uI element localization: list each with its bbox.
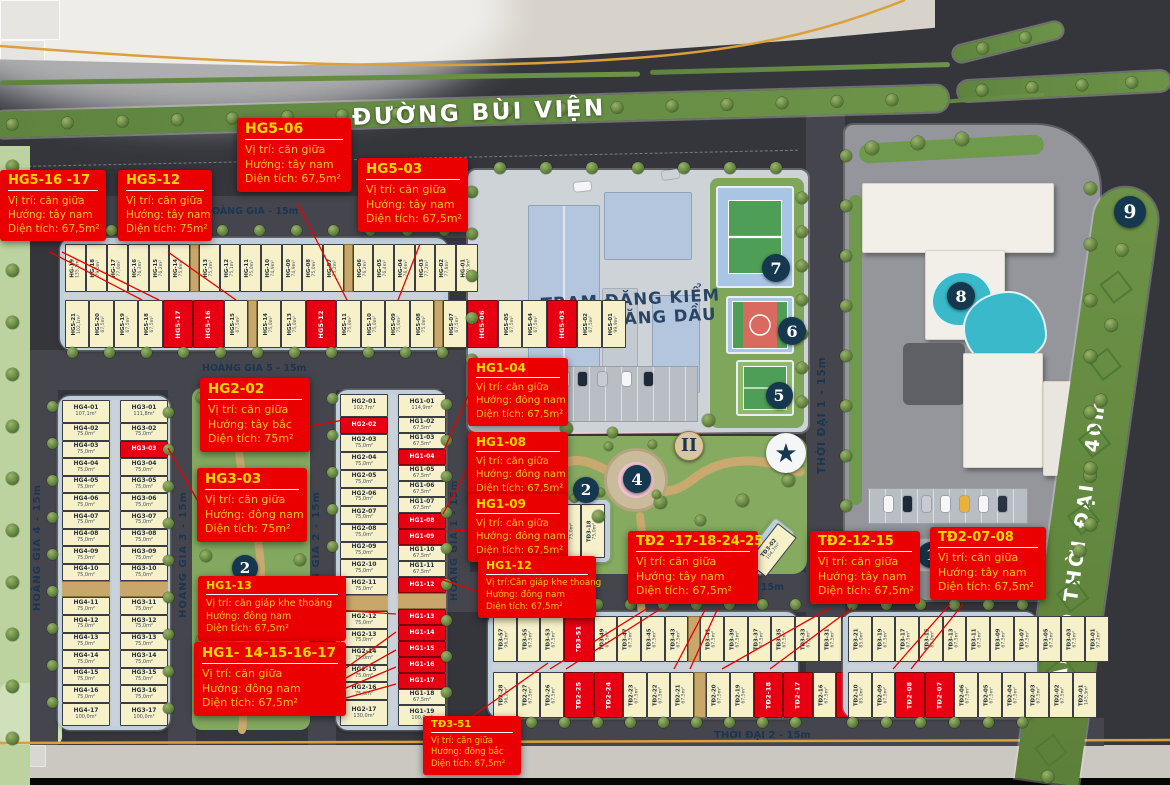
lot-area: 100,0m² [75,715,96,721]
lot-HG5-20: HG5-2067,5m² [89,300,113,348]
lot-HG2-07: HG2-0775,0m² [340,506,388,524]
tree-icon [796,362,808,374]
alley-road [688,616,700,662]
lot-HG5-09: HG5-0975,0m² [385,300,409,348]
lot-area: 75,0m² [355,551,373,557]
tree-icon [6,732,19,745]
tree-icon [625,717,636,728]
lot-HG3-06: HG3-0675,0m² [120,493,168,511]
tree-icon [559,717,570,728]
lot-area: 102,7m² [353,406,374,412]
tree-icon [47,697,58,708]
callout-title: TĐ2-07-08 [938,530,1038,548]
lot-area: 75,0m² [135,677,153,683]
lot-area: 85,0m² [860,631,865,648]
car-icon [903,496,912,512]
tree-icon [975,41,990,56]
lot-area: 76,2m² [363,260,368,277]
tree-icon [847,717,858,728]
tree-icon [141,347,152,358]
lot-HG2-01: HG2-01102,7m² [340,394,388,417]
callout-title: HG3-03 [205,471,299,490]
callout-title: HG5-06 [245,121,343,140]
lot-HG5-14: HG5-1475,0m² [257,300,281,348]
lot-area: 75,0m² [355,674,373,680]
lot-area: 75,0m² [135,624,153,630]
callout-line: Vị trí: căn giữa [366,183,460,198]
lot-TĐ2-04: TĐ2-0467,5m² [1002,672,1026,718]
lot-HG-08: HG-0875,0m² [302,244,323,292]
lot-area: 77,8m² [446,260,451,277]
lot-area: 100,0m² [133,715,154,721]
lot-TĐ2-19: TĐ2-1967,5m² [730,672,754,718]
callout-line: Vị trí: căn giáp khe thoáng [206,598,338,611]
lot-area: 67,5m² [127,316,132,333]
lot-HG5-10: HG5-1075,0m² [361,300,385,348]
lot-area: 67,5m² [1050,631,1055,648]
lot-area: 75,0m² [77,538,95,544]
lot-area: 75,0m² [77,573,95,579]
lot-HG-02: HG-0277,8m² [435,244,456,292]
callout-line: Hướng: đông nam [476,394,560,407]
road-label-hoang-gia-4: HOÀNG GIA 4 - 15m [32,455,43,640]
lawn-top [859,134,1045,164]
callout-title: HG1-13 [206,579,338,595]
tree-icon [217,225,228,236]
lot-area: 67,5m² [236,316,241,333]
alley-road [340,595,388,611]
lot-HG4-02: HG4-0275,0m² [62,423,110,441]
lot-area: 75,0m² [355,497,373,503]
lot-area: 75,0m² [77,660,95,666]
lot-HG3-09: HG3-0975,0m² [120,546,168,564]
tree-icon [47,401,58,412]
lot-HG1-06: HG1-0667,5m² [398,481,446,497]
lot-area: 75,0m² [135,695,153,701]
tree-icon [1084,294,1097,307]
lot-name: HG1-09 [410,534,435,541]
lot-HG-10: HG-1074,9m² [261,244,282,292]
lot-area: 75,0m² [135,520,153,526]
lot-HG1-07: HG1-0767,5m² [398,497,446,513]
lot-HG-12: HG-1275,1m² [220,244,241,292]
tree-icon [881,717,892,728]
tree-icon [724,717,735,728]
lot-HG4-17: HG4-17100,0m² [62,703,110,726]
lot-area: 67,5m² [1026,631,1031,648]
lot-HG4-11: HG4-1175,0m² [62,597,110,615]
lot-name: HG5-12 [318,310,325,338]
tree-icon [865,141,879,155]
lot-area: 67,5m² [831,631,836,648]
alley-road [398,593,446,609]
alley-road [344,244,353,292]
car-icon [574,181,592,192]
tree-icon [178,347,189,358]
amenity-marker-4: 4 [623,465,651,493]
lot-TĐ2-06: TĐ2-0667,5m² [954,672,978,718]
tree-icon [1017,717,1028,728]
lot-HG1-11: HG1-1167,5m² [398,561,446,577]
road-label-thoi-dai-1: THỜI ĐẠI 1 - 15m [816,348,828,483]
lot-TĐ2-09: TĐ2-0967,5m² [872,672,896,718]
hedge-icon [1099,270,1133,304]
lot-area: 75,0m² [135,468,153,474]
lot-HG5-06: HG5-06 [467,300,497,348]
block-hoang-gia-north: HG-19135,1m²HG-1879,0m²HG-1777,0m²HG-167… [60,238,448,350]
lot-HG3-01: HG3-01111,8m² [120,400,168,423]
callout-line: Vị trí: căn giữa [431,736,513,747]
lot-HG5-21: HG5-21102,1m² [65,300,89,348]
lot-HG-16: HG-1676,3m² [128,244,149,292]
lot-area: 97,2m² [1097,631,1102,648]
lot-HG1-14: HG1-14 [398,625,446,641]
lot-area: 67,5m² [1014,687,1019,704]
car-icon [578,372,587,386]
lot-HG4-10: HG4-1075,0m² [62,564,110,582]
lot-HG1-01: HG1-01114,9m² [398,394,446,417]
lot-area: 67,5m² [102,316,107,333]
lot-TĐ2-10: TĐ2-1085,0m² [848,672,872,718]
car-icon [884,496,893,512]
lot-area: 75,0m² [355,621,373,627]
lot-HG1-13: HG1-13 [398,609,446,625]
callout-line: Vị trí: căn giữa [202,667,338,682]
lot-row-bm_td3: TĐ3-5796,2m²TĐ3-5567,5m²TĐ3-5367,5m²TĐ3-… [493,616,793,662]
lot-area: 67,5m² [456,316,461,333]
tree-icon [886,94,898,106]
tree-icon [1026,81,1039,94]
lot-area: 67,5m² [553,631,558,648]
lot-area: 75,0m² [135,556,153,562]
lot-HG1-10: HG1-1067,5m² [398,545,446,561]
callout-hg1_09: HG1-09Vị trí: căn giữaHướng: đông namDiệ… [468,494,568,562]
amenity-marker-7: 7 [762,254,790,282]
back-alley [390,394,396,726]
tree-icon [796,226,808,238]
lot-HG3-04: HG3-0475,0m² [120,458,168,476]
lot-area: 77,2m² [426,260,431,277]
car-icon [941,496,950,512]
tree-icon [757,717,768,728]
tree-icon [6,420,19,433]
lot-TĐ2-05: TĐ2-0567,5m² [978,672,1002,718]
lot-TĐ2-07: TĐ2-07 [925,672,955,718]
callout-title: TĐ3-51 [431,719,513,733]
lot-TĐ2-21: TĐ2-2167,5m² [670,672,694,718]
tree-icon [163,407,174,418]
lot-area: 67,5m² [760,631,765,648]
lot-HG1-05: HG1-0567,5m² [398,465,446,481]
lot-row-bm_td2: TĐ2-2896,2m²TĐ2-2767,5m²TĐ2-2667,5m²TĐ2-… [493,672,793,718]
tree-icon [782,474,795,487]
tree-icon [757,599,768,610]
lot-HG-11: HG-1175,0m² [240,244,261,292]
lot-HG-19: HG-19135,1m² [65,244,86,292]
callout-line: Diện tích: 75m² [208,432,302,447]
tree-icon [1084,350,1097,363]
lot-TĐ3-57: TĐ3-5796,2m² [493,616,517,662]
lot-HG-05: HG-0576,4m² [373,244,394,292]
lot-HG2-14: HG2-1475,0m² [340,647,388,665]
callout-line: Diện tích: 67,5m² [206,623,338,636]
lot-area: 75,0m² [270,316,275,333]
lot-HG5-18: HG5-1867,5m² [138,300,162,348]
existing-area-bottom [0,745,1170,778]
lot-HG5-11: HG5-1175,0m² [336,300,360,348]
tree-icon [163,555,174,566]
callout-hg1_13: HG1-13Vị trí: căn giáp khe thoángHướng: … [198,576,346,641]
lot-HG4-12: HG4-1275,0m² [62,615,110,633]
alley-road [694,672,706,718]
lot-TĐ2-03: TĐ2-0367,5m² [1025,672,1049,718]
tree-icon [327,467,338,478]
callout-hg1_12: HG1-12Vị trí:Căn giáp khe thoángHướng: đ… [478,556,596,618]
lot-area: 76,3m² [139,260,144,277]
tree-icon [666,100,678,112]
lot-HG3-17: HG3-17100,0m² [120,703,168,726]
lot-row-hg5_south: HG5-21102,1m²HG5-2067,5m²HG5-1967,5m²HG5… [65,300,443,348]
tree-icon [163,518,174,529]
tree-icon [47,549,58,560]
lot-area: 107,1m² [75,412,96,418]
tree-icon [47,512,58,523]
lot-TĐ2-16: TĐ2-1667,5m² [813,672,837,718]
tree-icon [47,660,58,671]
callout-line: Diện tích: 67,5m² [202,696,338,711]
lot-area: 75,0m² [77,503,95,509]
lot-TĐ2-23: TĐ2-2367,5m² [623,672,647,718]
lot-TĐ2-22: TĐ2-2267,5m² [647,672,671,718]
lot-name: HG1-14 [410,630,435,637]
lot-column-hg1: HG1-01114,9m²HG1-0267,5m²HG1-0367,5m²HG1… [398,394,446,726]
tree-icon [1084,462,1097,475]
lot-TĐ2-27: TĐ2-2767,5m² [517,672,541,718]
tree-icon [61,117,73,129]
lot-TĐ3-19: TĐ3-1967,5m² [872,616,896,662]
lot-name: HG5-06 [479,310,486,338]
callout-line: Vị trí: căn giữa [938,551,1038,566]
lot-HG4-16: HG4-1675,0m² [62,685,110,703]
lot-HG2-06: HG2-0675,0m² [340,488,388,506]
callout-line: Hướng: đông bắc [431,747,513,758]
lot-name: TĐ2-08 [907,681,914,709]
amenity-marker-2: 2 [573,477,599,503]
lot-area: 75,0m² [77,485,95,491]
callout-hg5_06: HG5-06Vị trí: căn giữaHướng: tây namDiện… [237,118,351,192]
lot-HG4-08: HG4-0875,0m² [62,529,110,547]
lot-area: 75,0m² [135,573,153,579]
lot-area: 75,0m² [373,316,378,333]
tree-icon [1084,406,1097,419]
car-icon [598,372,607,386]
lot-name: HG3-03 [132,446,157,453]
lot-HG1-12: HG1-12 [398,577,446,593]
tree-icon [1104,318,1119,333]
lot-area: 67,5m² [413,474,431,480]
tree-icon [976,84,989,97]
lot-HG2-10: HG2-1075,0m² [340,559,388,577]
tree-icon [363,347,374,358]
tree-icon [466,270,478,282]
lot-HG2-08: HG2-0875,0m² [340,524,388,542]
lot-TĐ2-02: TĐ2-0267,5m² [1049,672,1073,718]
tree-icon [592,717,603,728]
callout-line: Hướng: đông nam [202,682,338,697]
tree-icon [441,615,452,626]
callout-title: HG1-12 [486,559,588,575]
callout-title: HG1- 14-15-16-17 [202,645,338,664]
lot-TĐ3-31: TĐ3-3167,5m² [819,616,843,662]
callout-line: Vị trí: căn giữa [8,194,98,208]
tree-icon [1018,30,1033,45]
lot-name: HG1-15 [410,646,435,653]
lot-area: 96,2m² [505,687,510,704]
callout-title: HG2-02 [208,381,302,400]
lot-HG5-17: HG5-17 [163,300,193,348]
lot-HG-03: HG-0377,2m² [415,244,436,292]
lot-TĐ2-26: TĐ2-2667,5m² [540,672,564,718]
lot-HG5-19: HG5-1967,5m² [114,300,138,348]
lot-area: 67,5m² [677,631,682,648]
callout-hg5_12: HG5-12Vị trí: căn giữaHướng: tây namDiện… [118,170,212,241]
callout-td3_51: TĐ3-51Vị trí: căn giữaHướng: đông bắcDiệ… [423,716,521,775]
lot-HG2-17: HG2-17130,0m² [340,700,388,726]
tree-icon [6,576,19,589]
lot-area: 75,0m² [355,462,373,468]
lot-HG3-05: HG3-0575,0m² [120,476,168,494]
callout-title: HG5-16 -17 [8,173,98,191]
tree-icon [441,687,452,698]
tree-icon [327,430,338,441]
lot-area: 67,5m² [413,506,431,512]
lot-area: 75,0m² [313,260,318,277]
lot-area: 111,8m² [133,412,154,418]
callout-line: Hướng: tây nam [245,158,343,173]
tree-icon [790,599,801,610]
lot-TĐ3-05: TĐ3-0567,5m² [1038,616,1062,662]
callout-title: HG5-12 [126,173,204,191]
lot-HG5-12: HG5-12 [306,300,336,348]
car-icon [622,372,631,386]
tree-icon [1076,79,1089,92]
canopy-building [604,192,692,260]
callout-line: Diện tích: 67,5m² [486,602,588,614]
lot-name: HG1-13 [410,614,435,621]
back-alley [112,400,118,726]
tree-icon [840,250,852,262]
tree-icon [441,651,452,662]
lot-area: 75,0m² [77,432,95,438]
lot-TĐ3-09: TĐ3-0967,5m² [990,616,1014,662]
tree-icon [441,579,452,590]
tree-icon [494,162,506,174]
lot-TĐ3-11: TĐ3-1167,5m² [966,616,990,662]
callout-line: Diện tích: 67,5m² [245,172,343,187]
callout-hg5_16_17: HG5-16 -17Vị trí: căn giữaHướng: tây nam… [0,170,106,241]
hedge-icon [1034,734,1068,768]
tree-icon [592,510,605,523]
lot-area: 67,5m² [884,631,889,648]
tree-icon [691,717,702,728]
lot-area: 67,5m² [807,631,812,648]
lot-HG4-05: HG4-0575,0m² [62,476,110,494]
car-icon [922,496,931,512]
lot-area: 76,2m² [159,260,164,277]
lot-area: 67,5m² [990,687,995,704]
lot-area: 67,5m² [736,631,741,648]
lot-TĐ2-18: TĐ2-18 [754,672,784,718]
callout-line: Diện tích: 67,5m² [366,212,460,227]
callout-line: Hướng: đông nam [476,468,560,481]
lot-area: 85,0m² [860,687,865,704]
callout-line: Vị trí: căn giữa [245,143,343,158]
lot-name: HG5-16 [205,310,212,338]
callout-title: TĐ2-12-15 [818,534,912,552]
tree-icon [695,515,706,526]
callout-title: TĐ2 -17-18-24-25 [636,534,750,552]
lot-HG5-04: HG5-0467,5m² [522,300,546,348]
block-td3-td2-west: TĐ3-5796,2m²TĐ3-5567,5m²TĐ3-5367,5m²TĐ3-… [488,612,798,718]
lot-area: 67,5m² [955,631,960,648]
amenity-marker-5: 5 [766,382,793,409]
callout-line: Diện tích: 67,5m² [8,222,98,236]
lot-TĐ3-33: TĐ3-3367,5m² [795,616,819,662]
tree-icon [200,550,212,562]
tree-icon [770,162,782,174]
lot-area: 75,0m² [355,656,373,662]
lot-area: 102,1m² [78,314,83,333]
road-label-hoang-gia-5: HOÀNG GIA 5 - 15m [202,363,306,374]
callout-td2_07: TĐ2-07-08Vị trí: căn giữaHướng: tây namD… [930,527,1046,600]
lot-name: HG2-02 [352,422,377,429]
lot-HG5-02: HG5-0267,5m² [577,300,601,348]
lot-area: 67,5m² [413,490,431,496]
alley-road [120,581,168,597]
lot-area: 114,9m² [411,406,432,412]
lot-TĐ3-17: TĐ3-1767,5m² [895,616,919,662]
tree-icon [604,442,613,451]
lot-HG4-01: HG4-01107,1m² [62,400,110,423]
lot-row-br_td2: TĐ2-1085,0m²TĐ2-0967,5m²TĐ2-08TĐ2-07TĐ2-… [848,672,1032,718]
lot-area: 75,0m² [570,523,575,540]
lot-area: 67,5m² [413,442,431,448]
lot-area: 75,0m² [422,316,427,333]
tree-icon [658,717,669,728]
lot-area: 67,5m² [630,631,635,648]
lot-area: 67,5m² [553,687,558,704]
tree-icon [254,225,265,236]
tree-icon [949,717,960,728]
lot-area: 96,2m² [505,631,510,648]
tree-icon [796,294,808,306]
lot-area: 67,5m² [606,631,611,648]
callout-line: Vị trí: căn giữa [818,555,912,570]
tree-icon [840,450,852,462]
lot-HG5-01: HG5-0199,9m² [602,300,626,348]
lot-area: 75,0m² [135,503,153,509]
lot-area: 85,0m² [931,631,936,648]
tree-icon [915,717,926,728]
lot-HG3-08: HG3-0875,0m² [120,529,168,547]
lot-HG-15: HG-1576,2m² [149,244,170,292]
callout-hg1_08: HG1-08Vị trí: căn giữaHướng: đông namDiệ… [468,432,568,500]
lot-HG1-15: HG1-15 [398,641,446,657]
tree-icon [724,162,736,174]
tree-icon [400,347,411,358]
lot-row-br_td3: TĐ3-2185,0m²TĐ3-1967,5m²TĐ3-1767,5m²TĐ3-… [848,616,1032,662]
tree-icon [6,472,19,485]
